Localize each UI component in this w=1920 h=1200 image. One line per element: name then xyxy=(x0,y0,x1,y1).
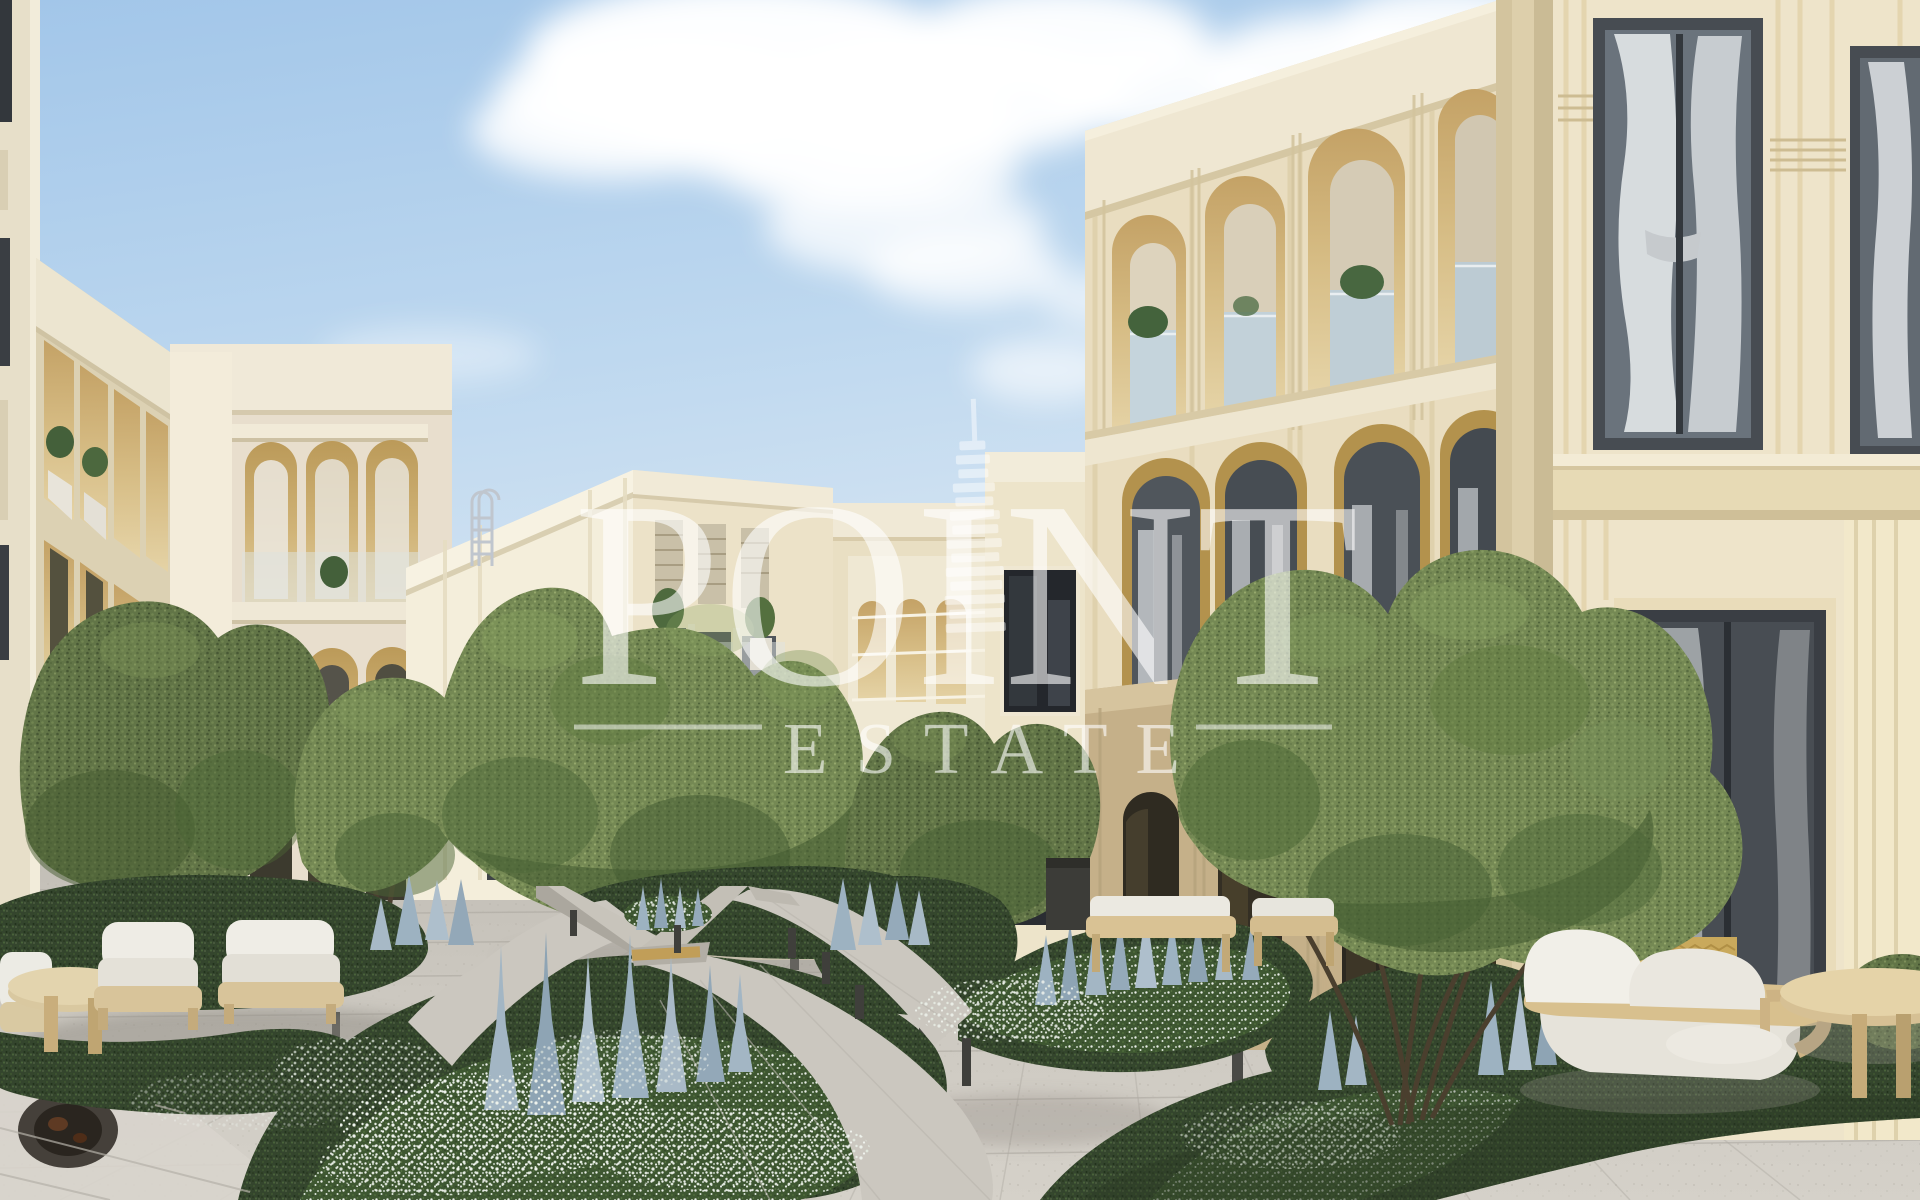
svg-text:POINT: POINT xyxy=(573,446,1359,742)
